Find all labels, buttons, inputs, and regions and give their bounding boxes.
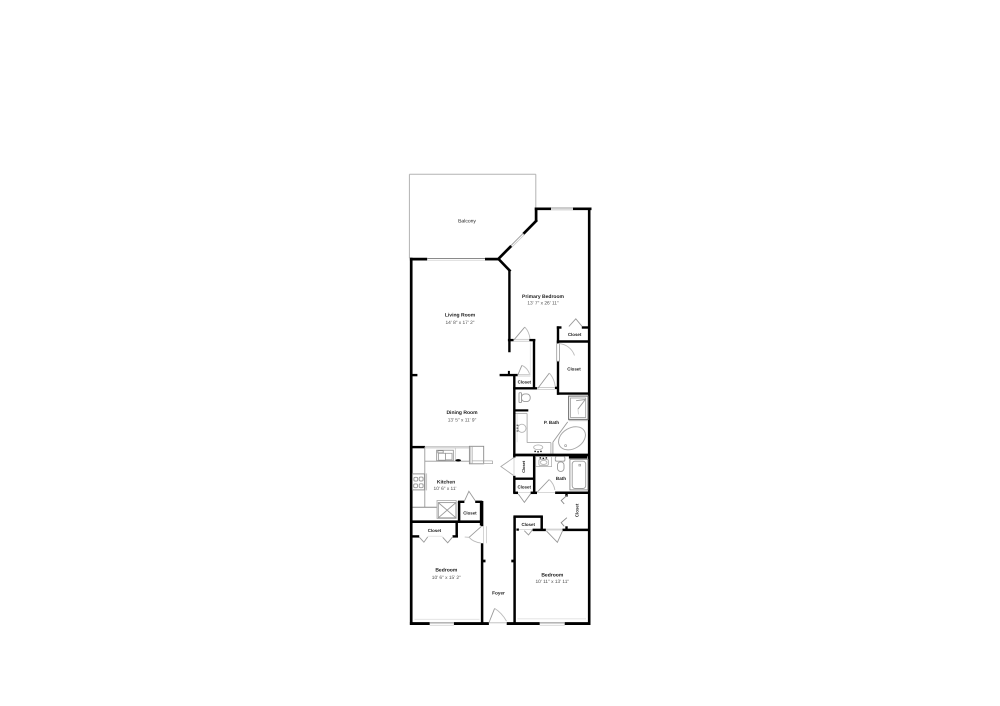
svg-text:Closet: Closet: [428, 528, 442, 533]
svg-text:Bedroom: Bedroom: [541, 573, 564, 579]
svg-text:Living Room: Living Room: [445, 313, 476, 319]
svg-text:Closet: Closet: [521, 460, 526, 473]
svg-text:Closet: Closet: [568, 332, 582, 337]
svg-text:Kitchen: Kitchen: [437, 480, 455, 486]
svg-text:Closet: Closet: [567, 366, 581, 371]
svg-text:Closet: Closet: [521, 522, 535, 527]
svg-text:Balcony: Balcony: [458, 218, 476, 224]
svg-text:10' 11" x 13' 11": 10' 11" x 13' 11": [535, 579, 569, 585]
svg-text:Primary Bedroom: Primary Bedroom: [522, 294, 565, 300]
svg-text:10' 6" x 11': 10' 6" x 11': [434, 486, 457, 492]
svg-text:Bath: Bath: [556, 476, 566, 481]
svg-text:Dining Room: Dining Room: [446, 410, 478, 416]
svg-text:14' 8" x 17' 2": 14' 8" x 17' 2": [446, 320, 475, 326]
svg-text:Closet: Closet: [574, 503, 579, 517]
svg-text:Closet: Closet: [518, 380, 532, 385]
svg-text:Closet: Closet: [517, 485, 531, 490]
svg-text:Closet: Closet: [463, 510, 477, 515]
svg-text:Foyer: Foyer: [492, 590, 505, 595]
svg-text:Bedroom: Bedroom: [435, 568, 458, 574]
svg-text:13' 5" x 11' 9": 13' 5" x 11' 9": [448, 418, 477, 424]
svg-text:13' 7" x 26' 11": 13' 7" x 26' 11": [527, 301, 559, 307]
svg-text:10' 6" x 15' 2": 10' 6" x 15' 2": [432, 575, 461, 581]
svg-text:P. Bath: P. Bath: [544, 420, 559, 425]
